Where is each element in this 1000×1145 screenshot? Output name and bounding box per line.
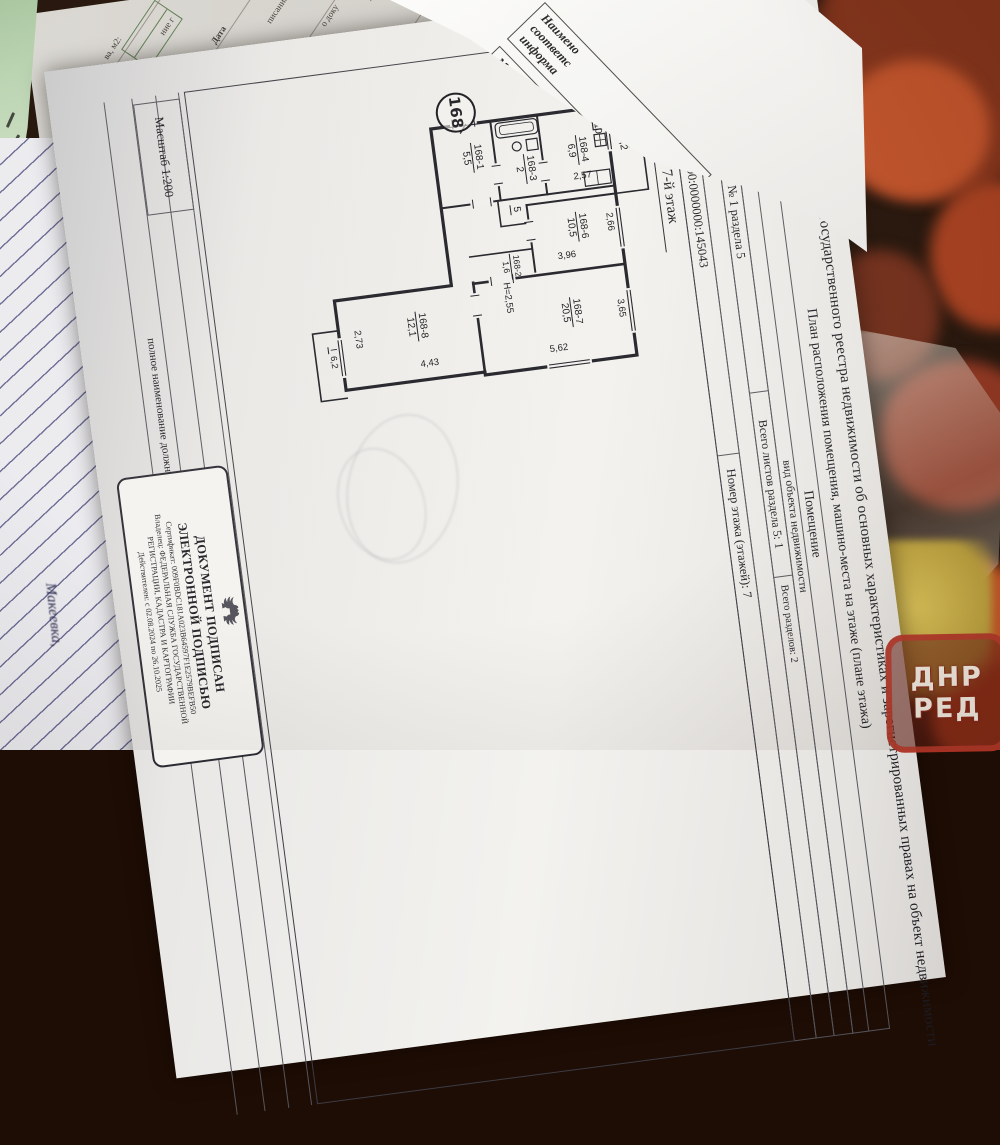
room-label-168-7: 168-7 20,5 [558, 296, 585, 328]
room-label-168-2: 168-2 1,6 [500, 252, 523, 280]
room-label-168-1: 168-1 5,5 [459, 141, 486, 173]
paper-fragment: писание: [264, 0, 291, 25]
room-label-168-6: 168-6 10,5 [564, 210, 591, 242]
room-label-168-3: 168-3 2 [512, 153, 539, 185]
room-label-168-4: 168-4 6,9 [564, 134, 591, 166]
watermark-line1: ДНР [910, 661, 983, 693]
dimension-2-73: 2,73 [351, 330, 364, 350]
paper-fragment: о доку [318, 2, 340, 28]
room-label-168-8: 168-8 12,1 [403, 310, 430, 342]
dimension-3-65: 3,65 [615, 298, 628, 318]
eagle-emblem-icon [216, 593, 243, 630]
room-label-5: 5 [509, 204, 522, 215]
watermark-line2: РЕД [913, 692, 982, 724]
handwritten-note: Макеевка, [41, 582, 60, 604]
dnr-red-watermark: ДНР РЕД [885, 633, 1000, 753]
scale-label: Масштаб 1:200 [133, 99, 194, 216]
paper-fragment: Руб. [364, 0, 381, 3]
dimension-2-66: 2,66 [603, 212, 616, 232]
